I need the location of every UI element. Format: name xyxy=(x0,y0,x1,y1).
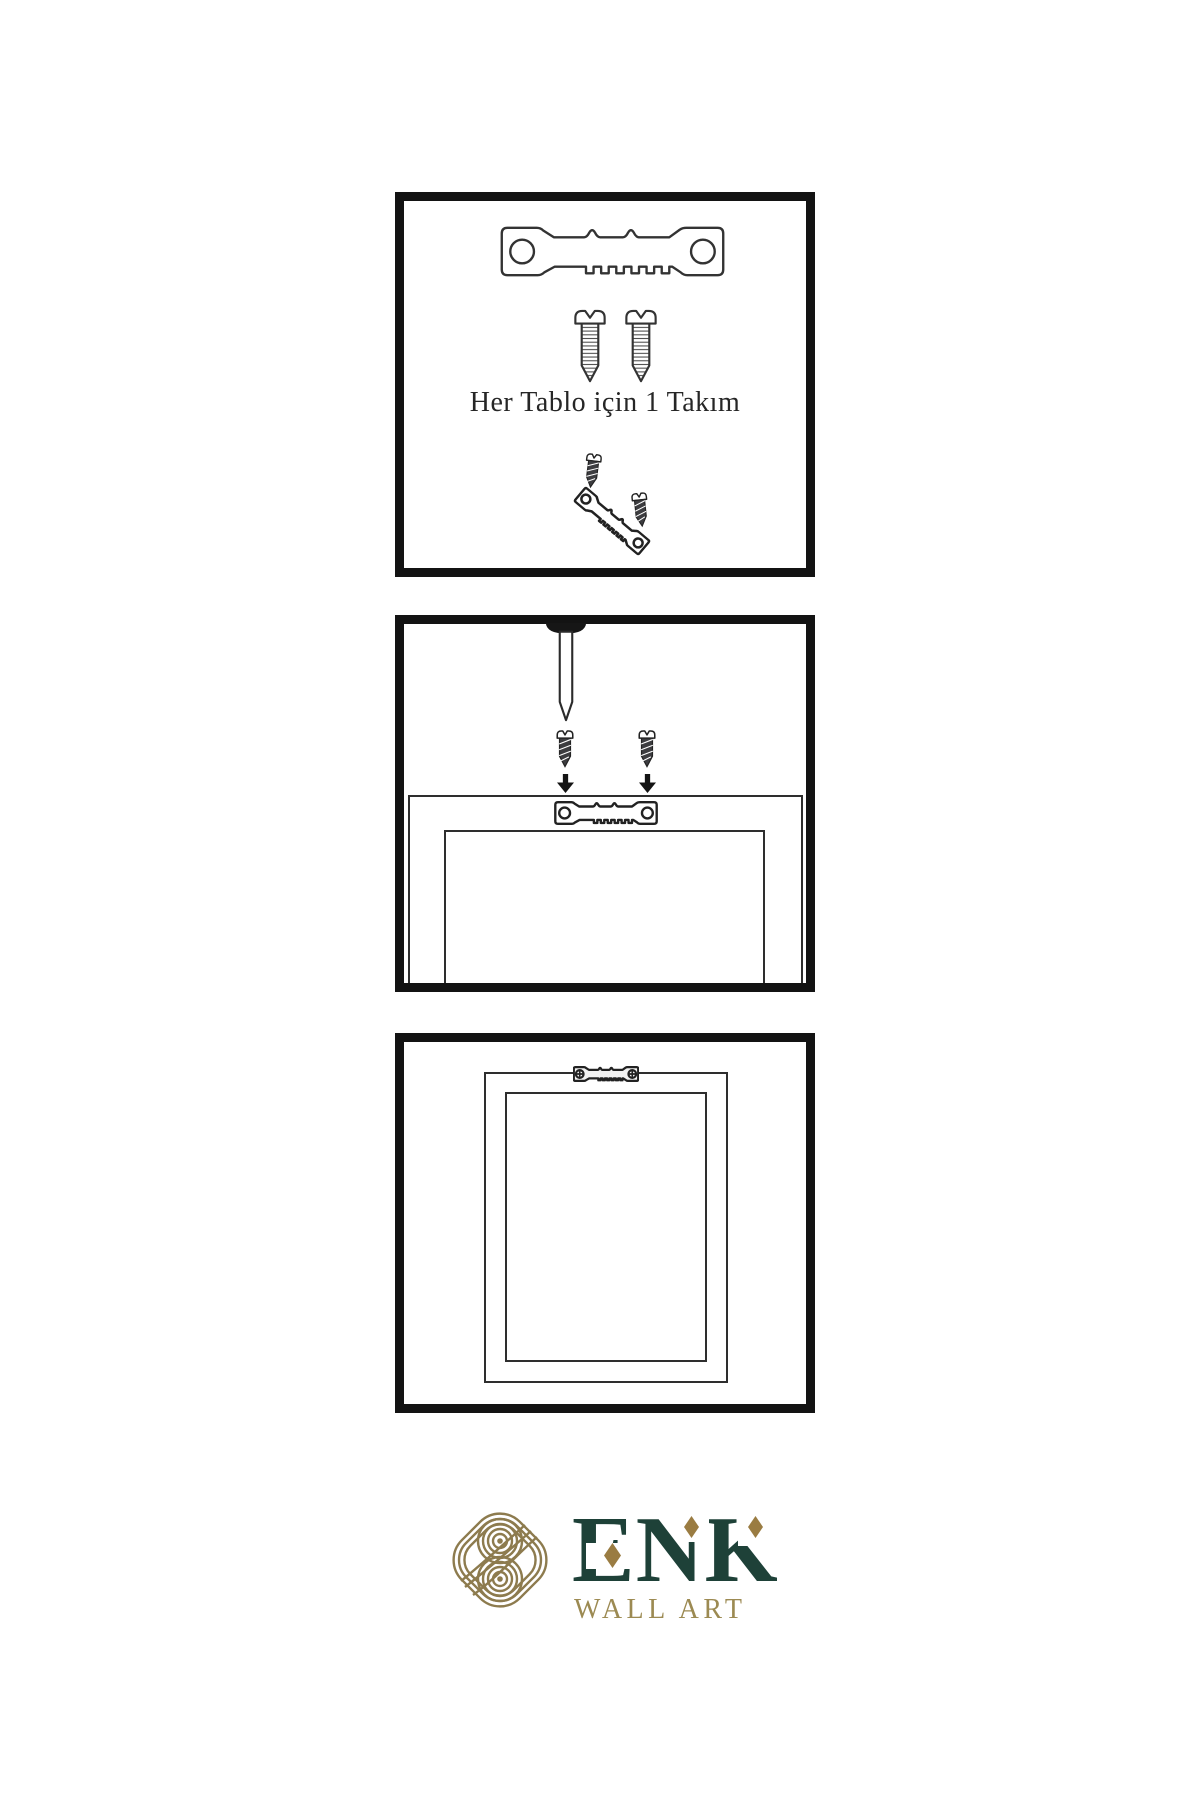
frame-back-inner-outline xyxy=(444,830,765,983)
brand-tagline: WALL ART xyxy=(574,1594,747,1626)
dark-screw-icon xyxy=(554,726,576,771)
panel-frame-mounted xyxy=(395,1033,815,1413)
down-arrow-icon xyxy=(557,774,574,793)
dark-screw-icon xyxy=(636,726,658,771)
down-arrow-icon xyxy=(639,774,656,793)
screw-icon xyxy=(623,307,659,387)
wall-nail-icon xyxy=(544,623,588,723)
enk-knot-logo-icon xyxy=(437,1497,563,1623)
panel-hardware-kit: Her Tablo için 1 Takım xyxy=(395,192,815,577)
dark-screw-icon xyxy=(580,451,605,490)
instruction-sheet: Her Tablo için 1 Takım xyxy=(0,0,1200,1800)
sawtooth-hanger-icon xyxy=(554,800,658,826)
sawtooth-hanger-icon xyxy=(497,225,728,278)
kit-caption: Her Tablo için 1 Takım xyxy=(404,387,806,419)
frame-back-inner-outline xyxy=(505,1092,707,1362)
dark-screw-icon xyxy=(628,490,653,529)
screw-icon xyxy=(572,307,608,387)
panel-attach-hanger xyxy=(395,615,815,992)
sawtooth-hanger-screwed-icon xyxy=(573,1066,639,1082)
